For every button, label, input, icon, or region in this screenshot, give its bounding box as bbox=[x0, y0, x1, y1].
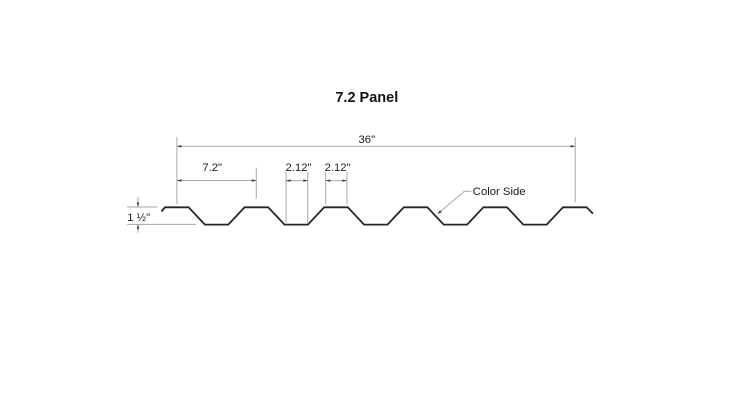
svg-text:36": 36" bbox=[359, 134, 376, 146]
svg-text:7.2": 7.2" bbox=[202, 162, 222, 174]
svg-text:1 ½": 1 ½" bbox=[127, 212, 150, 224]
svg-text:2.12": 2.12" bbox=[325, 162, 351, 174]
svg-text:Color Side: Color Side bbox=[473, 186, 526, 198]
svg-text:2.12": 2.12" bbox=[286, 162, 312, 174]
svg-text:7.2 Panel: 7.2 Panel bbox=[335, 90, 398, 106]
